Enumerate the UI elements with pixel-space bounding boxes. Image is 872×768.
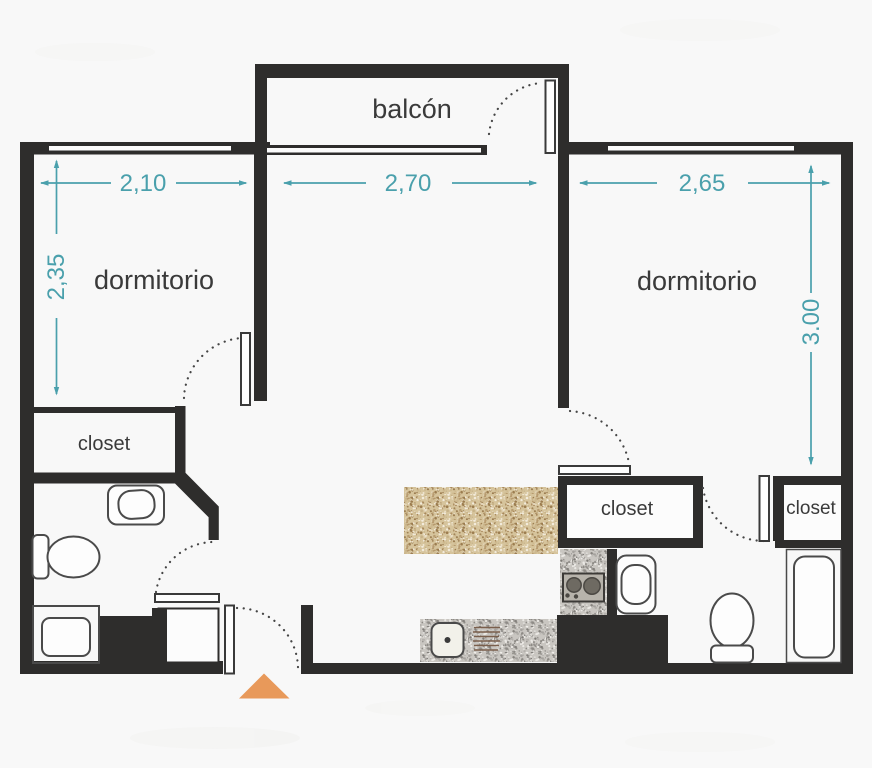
svg-text:dormitorio: dormitorio — [637, 266, 757, 296]
svg-text:dormitorio: dormitorio — [94, 265, 214, 295]
svg-text:closet: closet — [601, 498, 654, 520]
svg-text:2,65: 2,65 — [679, 170, 726, 197]
svg-text:balcón: balcón — [372, 94, 452, 124]
svg-text:closet: closet — [78, 433, 131, 455]
svg-text:2,70: 2,70 — [385, 170, 432, 197]
svg-text:2,10: 2,10 — [120, 170, 167, 197]
svg-text:closet: closet — [786, 498, 836, 519]
svg-text:3.00: 3.00 — [798, 299, 825, 346]
svg-text:2,35: 2,35 — [43, 254, 70, 301]
